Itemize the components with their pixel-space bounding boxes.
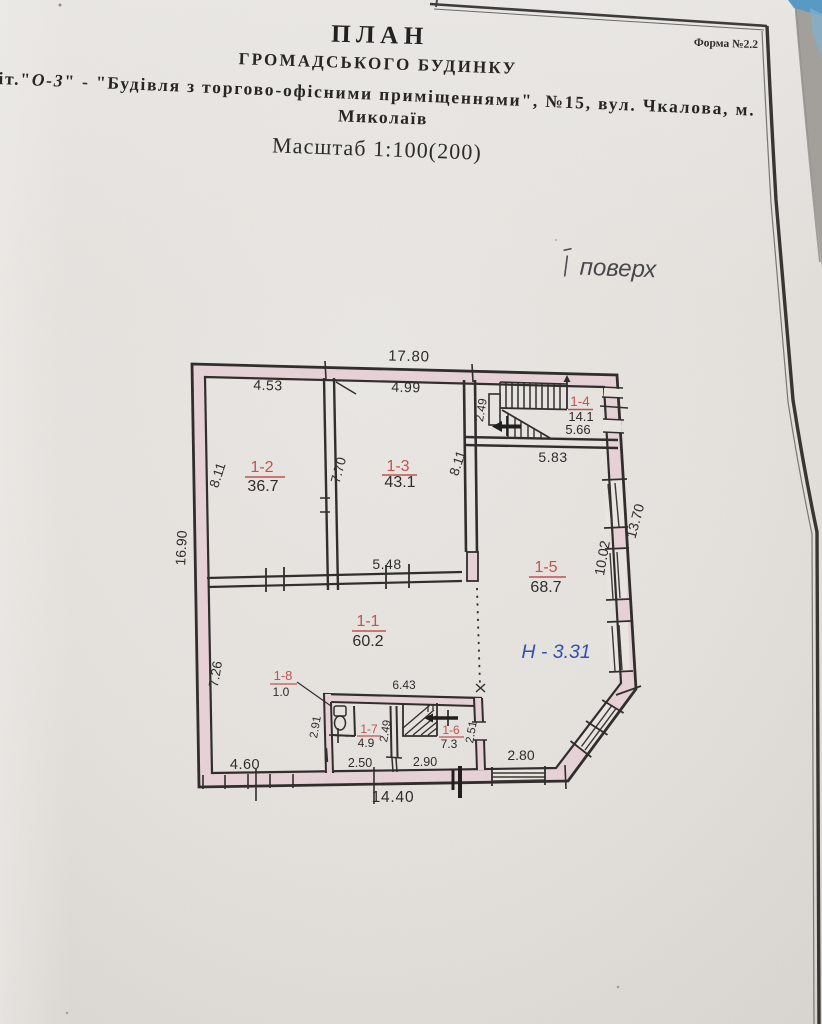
svg-text:68.7: 68.7 <box>530 579 561 596</box>
svg-text:5.48: 5.48 <box>372 556 401 572</box>
svg-text:36.7: 36.7 <box>247 478 278 495</box>
svg-text:16.90: 16.90 <box>172 530 190 566</box>
svg-text:1-7: 1-7 <box>360 722 378 736</box>
svg-text:17.80: 17.80 <box>388 347 430 365</box>
svg-text:1-5: 1-5 <box>534 559 557 576</box>
svg-text:2.80: 2.80 <box>507 747 534 763</box>
svg-text:6.43: 6.43 <box>392 678 416 692</box>
svg-text:ПЛАН: ПЛАН <box>331 21 429 51</box>
svg-text:5.66: 5.66 <box>565 422 590 437</box>
svg-text:1.0: 1.0 <box>273 685 290 699</box>
svg-text:2.50: 2.50 <box>348 756 372 770</box>
svg-text:4.9: 4.9 <box>358 736 375 750</box>
svg-text:H - 3.31: H - 3.31 <box>521 641 590 663</box>
svg-text:14.40: 14.40 <box>372 789 415 806</box>
svg-text:1-6: 1-6 <box>442 723 460 737</box>
svg-text:60.2: 60.2 <box>352 633 383 650</box>
svg-text:4.60: 4.60 <box>230 757 260 773</box>
svg-text:1-8: 1-8 <box>274 668 293 683</box>
svg-text:1-4: 1-4 <box>570 394 590 409</box>
svg-text:1-2: 1-2 <box>250 459 273 476</box>
svg-text:1-1: 1-1 <box>356 613 379 630</box>
svg-text:43.1: 43.1 <box>384 474 415 491</box>
svg-text:1-3: 1-3 <box>386 458 409 475</box>
svg-text:5.83: 5.83 <box>538 449 567 465</box>
svg-text:Миколаїв: Миколаїв <box>338 105 429 128</box>
svg-text:поверх: поверх <box>579 254 657 284</box>
svg-text:4.53: 4.53 <box>253 377 283 394</box>
svg-text:4.99: 4.99 <box>391 379 421 396</box>
svg-text:2.90: 2.90 <box>413 755 437 769</box>
svg-text:Форма №2.2: Форма №2.2 <box>694 37 759 51</box>
svg-text:7.3: 7.3 <box>441 737 458 751</box>
